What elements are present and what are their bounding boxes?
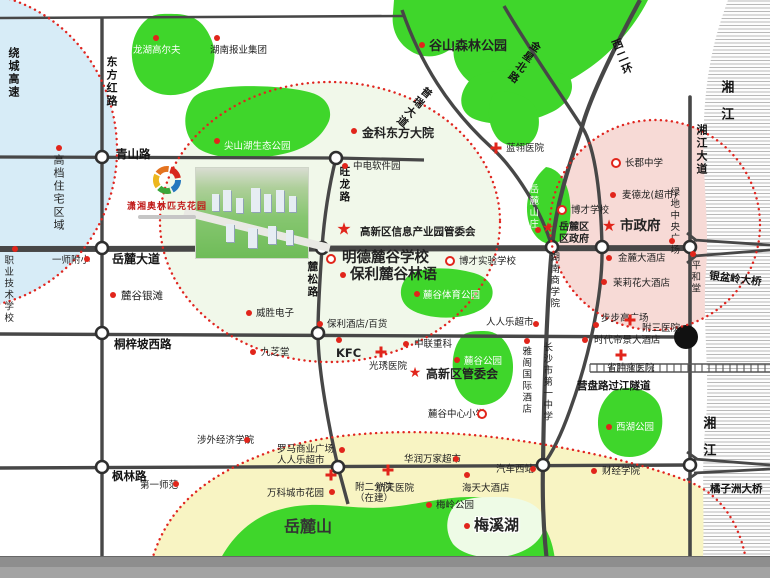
road-label: 湘江 bbox=[700, 416, 715, 470]
poi-marker-star-icon: ★ bbox=[542, 221, 555, 235]
poi-label: 保利麓谷林语 bbox=[350, 267, 437, 284]
poi-label: 梅溪湖 bbox=[474, 517, 519, 535]
poi-marker-dot-icon bbox=[426, 502, 432, 508]
road-label: 银盆岭大桥 bbox=[708, 270, 762, 289]
poi-label: 市政府 bbox=[620, 219, 661, 235]
poi-marker-dot-icon bbox=[153, 35, 159, 41]
poi-marker-dot-icon bbox=[610, 192, 616, 198]
poi-marker-dot-icon bbox=[317, 321, 323, 327]
poi-marker-dot-icon bbox=[606, 255, 612, 261]
poi-label: 人人乐超市 bbox=[486, 317, 534, 328]
road-label: 西二环 bbox=[608, 37, 635, 78]
poi-marker-dot-icon bbox=[414, 291, 420, 297]
poi-label: 职业技术学校 bbox=[2, 255, 13, 324]
poi-label: 蓝翎医院 bbox=[506, 143, 544, 154]
poi-label: 海天大酒店 bbox=[462, 483, 510, 494]
poi-label: 麓谷银滩 bbox=[121, 290, 163, 302]
poi-marker-dot-icon bbox=[329, 489, 335, 495]
poi-label: 省肿瘤医院 bbox=[607, 363, 655, 374]
poi-label: 金科东方大院 bbox=[362, 126, 434, 140]
poi-marker-dot-icon bbox=[336, 337, 342, 343]
poi-marker-star-icon: ★ bbox=[602, 218, 616, 234]
road-label: 营盘路过江隧道 bbox=[577, 380, 651, 392]
poi-marker-dot-icon bbox=[582, 337, 588, 343]
poi-marker-dot-icon bbox=[56, 145, 62, 151]
poi-marker-cross-icon bbox=[376, 347, 387, 358]
road-label: 金星北路 bbox=[504, 38, 543, 86]
poi-label: 中联重科 bbox=[414, 339, 452, 350]
poi-marker-star-icon: ★ bbox=[409, 366, 422, 380]
poi-label: 博才学校 bbox=[571, 205, 609, 216]
poi-marker-cross-icon bbox=[616, 350, 627, 361]
poi-label: 岳麓区区政府 bbox=[559, 222, 589, 246]
poi-marker-star-icon: ★ bbox=[336, 222, 351, 239]
poi-label: 时代帝景大酒店 bbox=[594, 335, 661, 346]
poi-label: 航天医院 bbox=[376, 483, 414, 494]
road-label: 青山路 bbox=[116, 148, 151, 162]
poi-marker-dot-icon bbox=[690, 251, 696, 257]
road-label: 岳麓大道 bbox=[112, 252, 160, 266]
poi-label: 汽车西站 bbox=[496, 464, 534, 475]
poi-label: 财经学院 bbox=[602, 466, 640, 477]
poi-label: 附三医院 bbox=[642, 323, 680, 334]
poi-marker-dot-icon bbox=[601, 279, 607, 285]
poi-marker-dot-icon bbox=[214, 138, 220, 144]
poi-marker-dot-icon bbox=[214, 35, 220, 41]
poi-label: 高新区管委会 bbox=[426, 367, 498, 381]
poi-marker-dot-icon bbox=[342, 163, 348, 169]
poi-marker-dot-icon bbox=[244, 437, 250, 443]
poi-label: 高档住宅区域 bbox=[51, 154, 64, 232]
poi-marker-cross-icon bbox=[491, 143, 502, 154]
road-label: 东方红路 bbox=[104, 56, 117, 108]
poi-label: 明德麓谷学校 bbox=[342, 250, 429, 267]
poi-marker-ring-icon bbox=[445, 256, 455, 266]
poi-marker-cross-icon bbox=[625, 315, 636, 326]
road-label: 绕城高速 bbox=[6, 47, 19, 99]
poi-label: 龙湖高尔夫 bbox=[133, 45, 181, 56]
poi-label: 威胜电子 bbox=[256, 308, 294, 319]
poi-label: 雅阁国际酒店 bbox=[520, 346, 531, 415]
poi-marker-dot-icon bbox=[593, 322, 599, 328]
poi-marker-dot-icon bbox=[340, 272, 346, 278]
road-label: 湘江 bbox=[718, 80, 733, 134]
poi-marker-dot-icon bbox=[339, 447, 345, 453]
poi-label: 麓谷公园 bbox=[464, 356, 502, 367]
poi-marker-dot-icon bbox=[606, 424, 612, 430]
poi-label: 绿地中央广场 bbox=[668, 187, 679, 256]
poi-label: KFC bbox=[336, 347, 361, 361]
poi-marker-dot-icon bbox=[173, 481, 179, 487]
poi-marker-dot-icon bbox=[12, 246, 18, 252]
poi-marker-ring-icon bbox=[326, 254, 336, 264]
poi-label: 博才实验学校 bbox=[459, 256, 516, 267]
poi-marker-dot-icon bbox=[419, 42, 425, 48]
poi-label: 岳麓山庄 bbox=[527, 184, 538, 230]
poi-marker-dot-icon bbox=[464, 523, 470, 529]
poi-label: 万科城市花园 bbox=[267, 488, 324, 499]
poi-label: 梅岭公园 bbox=[436, 500, 474, 511]
poi-marker-dot-icon bbox=[110, 292, 116, 298]
poi-label: 长沙市第一中学 bbox=[541, 342, 552, 423]
poi-label: 九芝堂 bbox=[261, 347, 290, 358]
poi-marker-dot-icon bbox=[250, 349, 256, 355]
poi-label: 谷山森林公园 bbox=[429, 39, 507, 54]
poi-marker-dot-icon bbox=[453, 456, 459, 462]
poi-marker-dot-icon bbox=[84, 256, 90, 262]
poi-marker-dot-icon bbox=[464, 472, 470, 478]
label-layer: 青山路岳麓大道桐梓坡西路枫林路东方红路绕城高速旺龙路麓松路湘江大道西二环金星北路… bbox=[0, 0, 770, 578]
poi-marker-dot-icon bbox=[524, 338, 530, 344]
poi-label: 高新区信息产业园管委会 bbox=[360, 226, 476, 238]
poi-label: 长郡中学 bbox=[625, 158, 663, 169]
poi-marker-dot-icon bbox=[403, 341, 409, 347]
poi-label: 中电软件园 bbox=[353, 161, 401, 172]
road-label: 麓松路 bbox=[306, 261, 318, 299]
poi-label: 保利酒店/百货 bbox=[327, 319, 387, 330]
road-label: 普瑞大道 bbox=[393, 84, 435, 130]
poi-marker-ring-icon bbox=[557, 205, 567, 215]
poi-label: 湖南商学院 bbox=[548, 252, 559, 310]
road-label: 橘子洲大桥 bbox=[710, 483, 763, 495]
poi-marker-dot-icon bbox=[535, 227, 541, 233]
poi-marker-dot-icon bbox=[454, 357, 460, 363]
road-label: 旺龙路 bbox=[338, 166, 350, 204]
poi-marker-dot-icon bbox=[246, 310, 252, 316]
poi-label: 茉莉花大酒店 bbox=[613, 278, 670, 289]
location-map: 潇湘奥林匹克花园 青山路岳麓大道桐梓坡西路枫林路东方红路绕城高速旺龙路麓松路湘江… bbox=[0, 0, 770, 578]
poi-label: 湖南报业集团 bbox=[210, 45, 267, 56]
poi-label: 金麓大酒店 bbox=[618, 253, 666, 264]
poi-marker-dot-icon bbox=[669, 238, 675, 244]
poi-label: 平和堂 bbox=[689, 260, 700, 295]
poi-marker-cross-icon bbox=[326, 470, 337, 481]
poi-label: 岳麓山 bbox=[284, 518, 332, 537]
road-label: 桐梓坡西路 bbox=[114, 338, 172, 352]
poi-label: 罗马商业广场人人乐超市 bbox=[277, 444, 334, 466]
poi-label: 麓谷体育公园 bbox=[423, 290, 480, 301]
poi-marker-dot-icon bbox=[591, 468, 597, 474]
poi-marker-cross-icon bbox=[383, 465, 394, 476]
poi-label: 光琇医院 bbox=[369, 361, 407, 372]
poi-marker-dot-icon bbox=[530, 466, 536, 472]
poi-marker-dot-icon bbox=[533, 321, 539, 327]
poi-label: 西湖公园 bbox=[616, 422, 654, 433]
poi-marker-ring-icon bbox=[477, 409, 487, 419]
poi-label: 尖山湖生态公园 bbox=[224, 141, 291, 152]
road-label: 湘江大道 bbox=[694, 124, 707, 176]
poi-marker-ring-icon bbox=[611, 158, 621, 168]
poi-marker-dot-icon bbox=[351, 128, 357, 134]
